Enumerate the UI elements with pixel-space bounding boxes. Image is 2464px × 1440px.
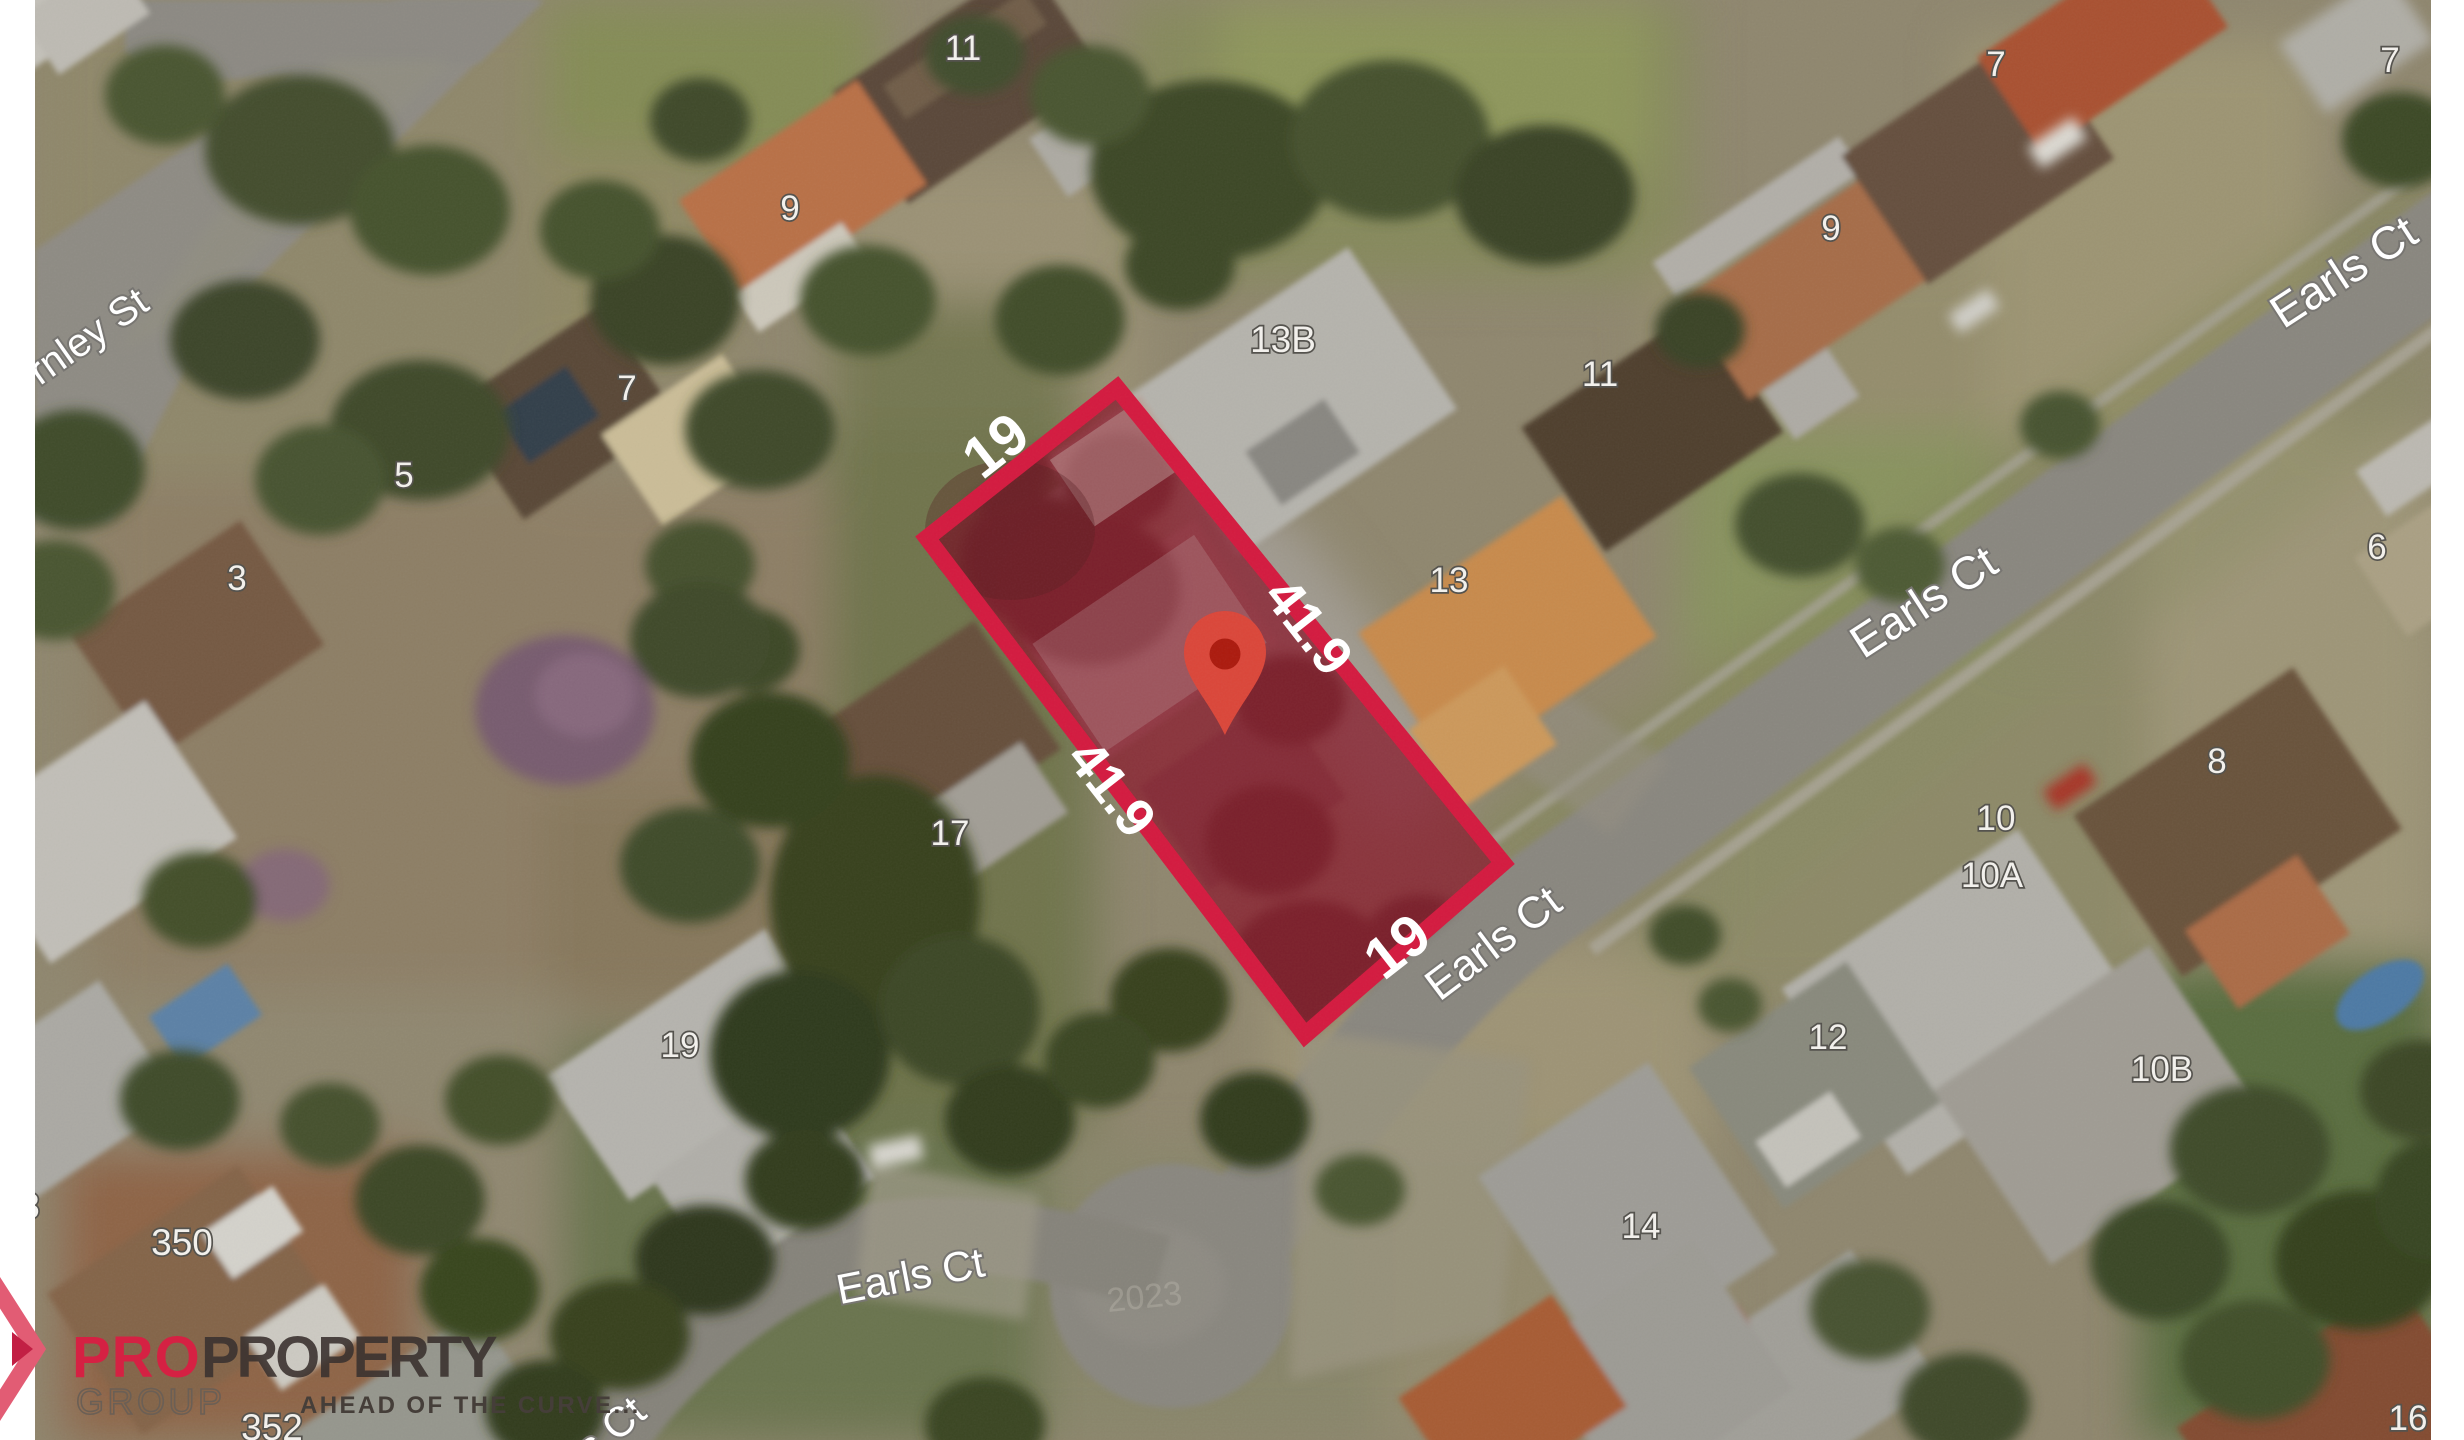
svg-text:19: 19 (661, 1026, 700, 1065)
svg-text:11: 11 (945, 29, 981, 68)
svg-text:9: 9 (780, 189, 799, 228)
svg-text:13B: 13B (1250, 319, 1316, 360)
svg-text:10B: 10B (2131, 1050, 2193, 1089)
svg-text:3: 3 (227, 559, 246, 598)
svg-text:7: 7 (2380, 41, 2399, 80)
svg-text:13: 13 (1430, 561, 1469, 600)
svg-text:9: 9 (1821, 209, 1840, 248)
svg-text:5: 5 (394, 456, 413, 495)
svg-text:6: 6 (2367, 528, 2386, 567)
svg-text:8: 8 (2207, 742, 2226, 781)
svg-text:10: 10 (1977, 799, 2016, 838)
svg-text:2023: 2023 (1105, 1274, 1184, 1320)
svg-text:AHEAD OF THE CURVE...: AHEAD OF THE CURVE... (300, 1392, 641, 1419)
svg-text:11: 11 (1582, 355, 1618, 394)
svg-text:17: 17 (931, 814, 970, 853)
svg-text:10A: 10A (1961, 856, 2024, 895)
svg-text:7: 7 (617, 369, 636, 408)
svg-text:12: 12 (1809, 1018, 1848, 1057)
svg-text:PROPERTY: PROPERTY (201, 1325, 497, 1390)
svg-text:7: 7 (1986, 45, 2005, 84)
svg-text:350: 350 (151, 1222, 213, 1263)
svg-text:14: 14 (1622, 1207, 1661, 1246)
svg-text:GROUP: GROUP (76, 1381, 226, 1422)
svg-text:352: 352 (241, 1407, 303, 1440)
svg-text:16: 16 (2389, 1399, 2428, 1438)
